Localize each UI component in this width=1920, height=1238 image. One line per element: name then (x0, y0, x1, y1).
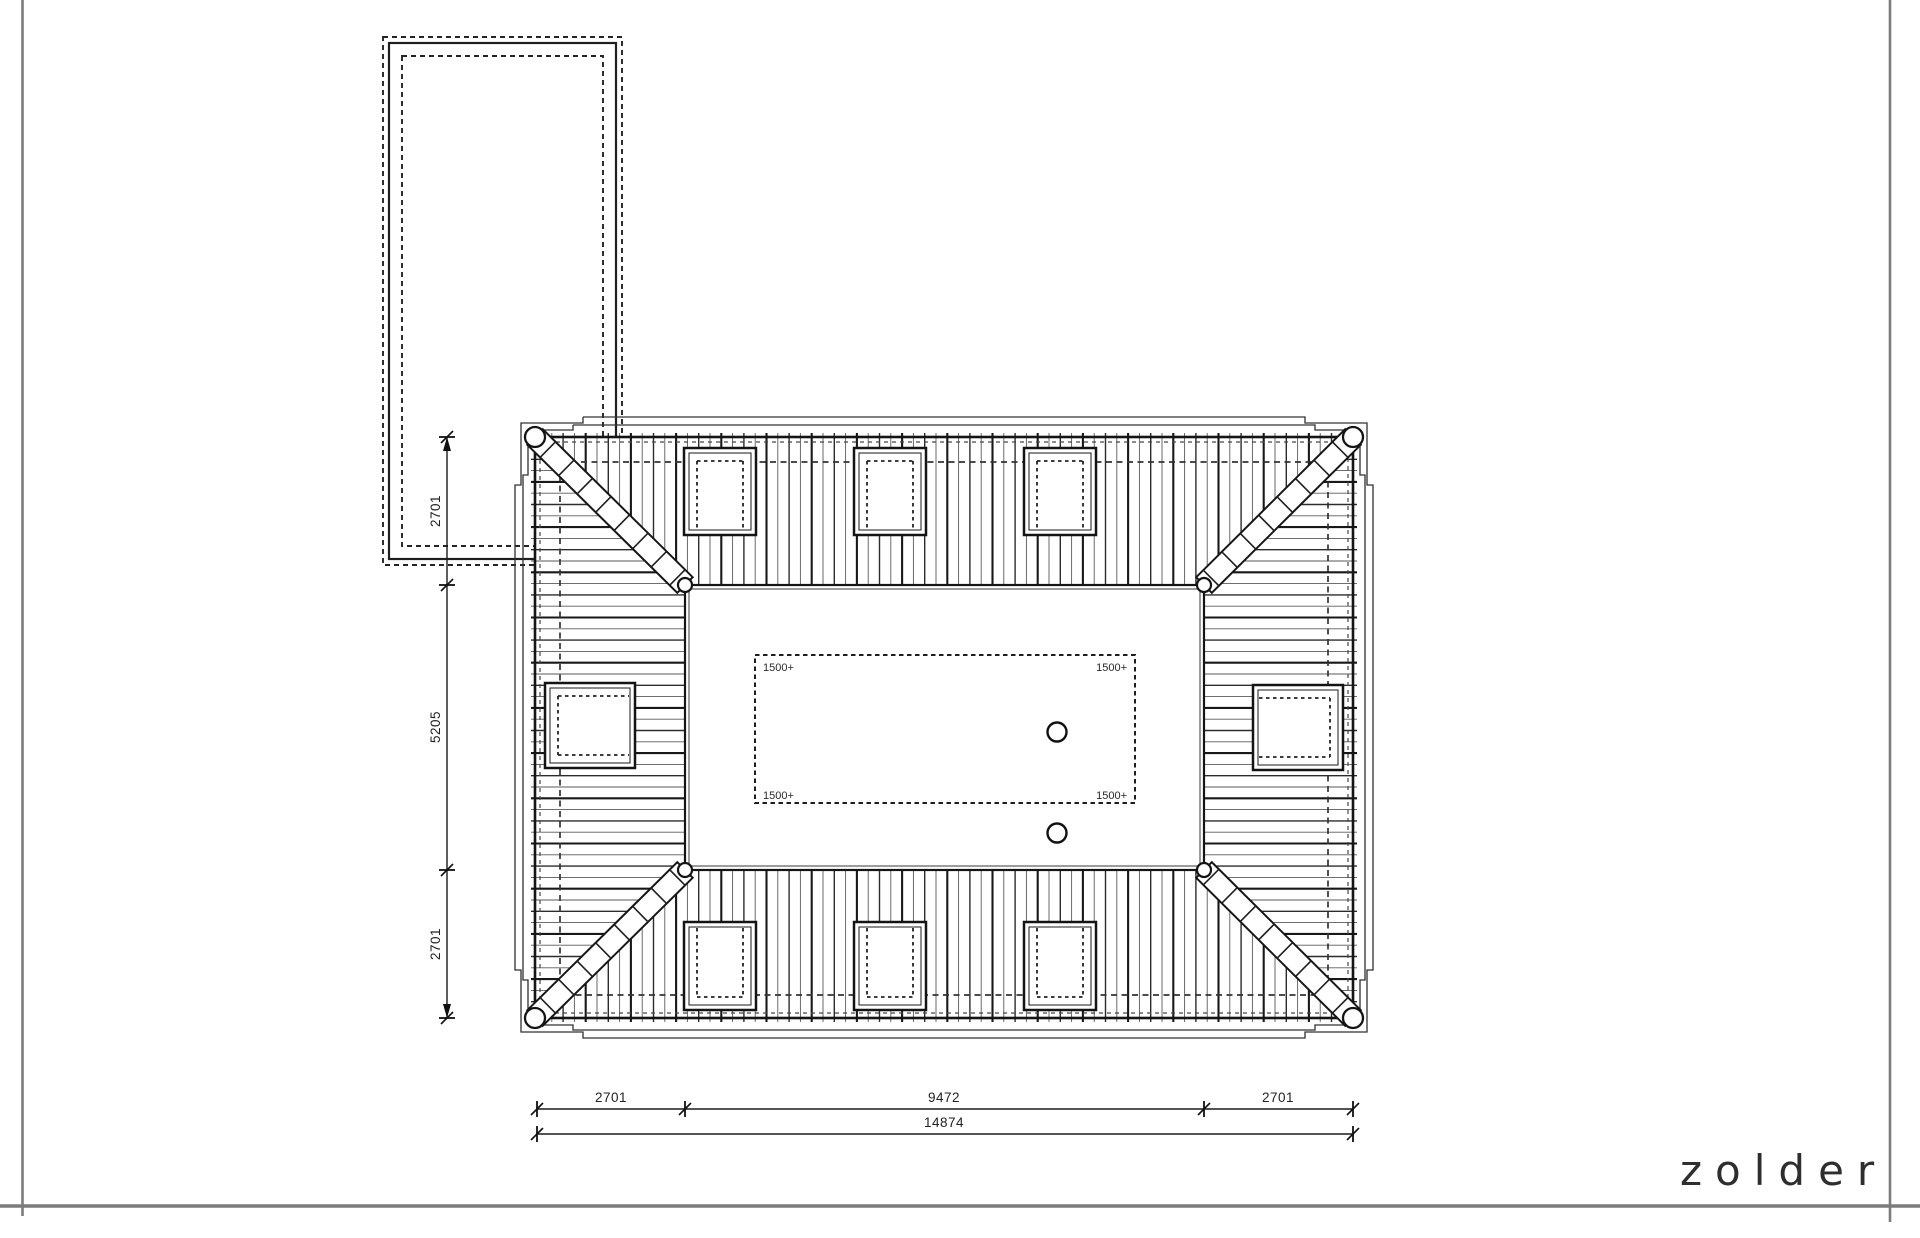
hip-inner-circle (1197, 578, 1211, 592)
hip-inner-circle (1197, 863, 1211, 877)
roof-vent-circle-2 (1048, 824, 1067, 843)
dim-left-2: 5205 (428, 711, 443, 743)
main-roof-plan: 1500+ 1500+ 1500+ 1500+ (515, 417, 1373, 1038)
hip-corner-circle (525, 1008, 545, 1028)
headroom-label-bottom-right: 1500+ (1096, 790, 1127, 802)
floor-plan-canvas: 1500+ 1500+ 1500+ 1500+ 2701 5205 2701 2… (0, 0, 1920, 1238)
skylight (1024, 448, 1096, 535)
hip-corner-circle (1343, 427, 1363, 447)
headroom-label-top-left: 1500+ (763, 662, 794, 674)
roof-vent-circle-1 (1048, 723, 1067, 742)
skylight (1253, 685, 1343, 770)
dim-left-3: 2701 (428, 928, 443, 960)
dim-left-1: 2701 (428, 495, 443, 527)
dim-bottom-1: 2701 (595, 1090, 627, 1105)
dim-bottom-total: 14874 (924, 1115, 964, 1130)
sheet-title: zolder (1680, 1146, 1887, 1195)
skylight (545, 683, 635, 768)
skylight (854, 922, 926, 1010)
skylight (684, 922, 756, 1010)
hip-inner-circle (678, 578, 692, 592)
hip-inner-circle (678, 863, 692, 877)
headroom-label-top-right: 1500+ (1096, 662, 1127, 674)
dim-bottom-2: 9472 (928, 1090, 960, 1105)
hip-corner-circle (1343, 1008, 1363, 1028)
headroom-label-bottom-left: 1500+ (763, 790, 794, 802)
flat-area-edge (685, 585, 1204, 870)
central-flat-area: 1500+ 1500+ 1500+ 1500+ (685, 585, 1204, 870)
drawing-sheet: 1500+ 1500+ 1500+ 1500+ 2701 5205 2701 2… (0, 0, 1920, 1238)
hip-corner-circle (525, 427, 545, 447)
dim-bottom-3: 2701 (1262, 1090, 1294, 1105)
skylight (854, 448, 926, 535)
skylight (1024, 922, 1096, 1010)
skylight (684, 448, 756, 535)
